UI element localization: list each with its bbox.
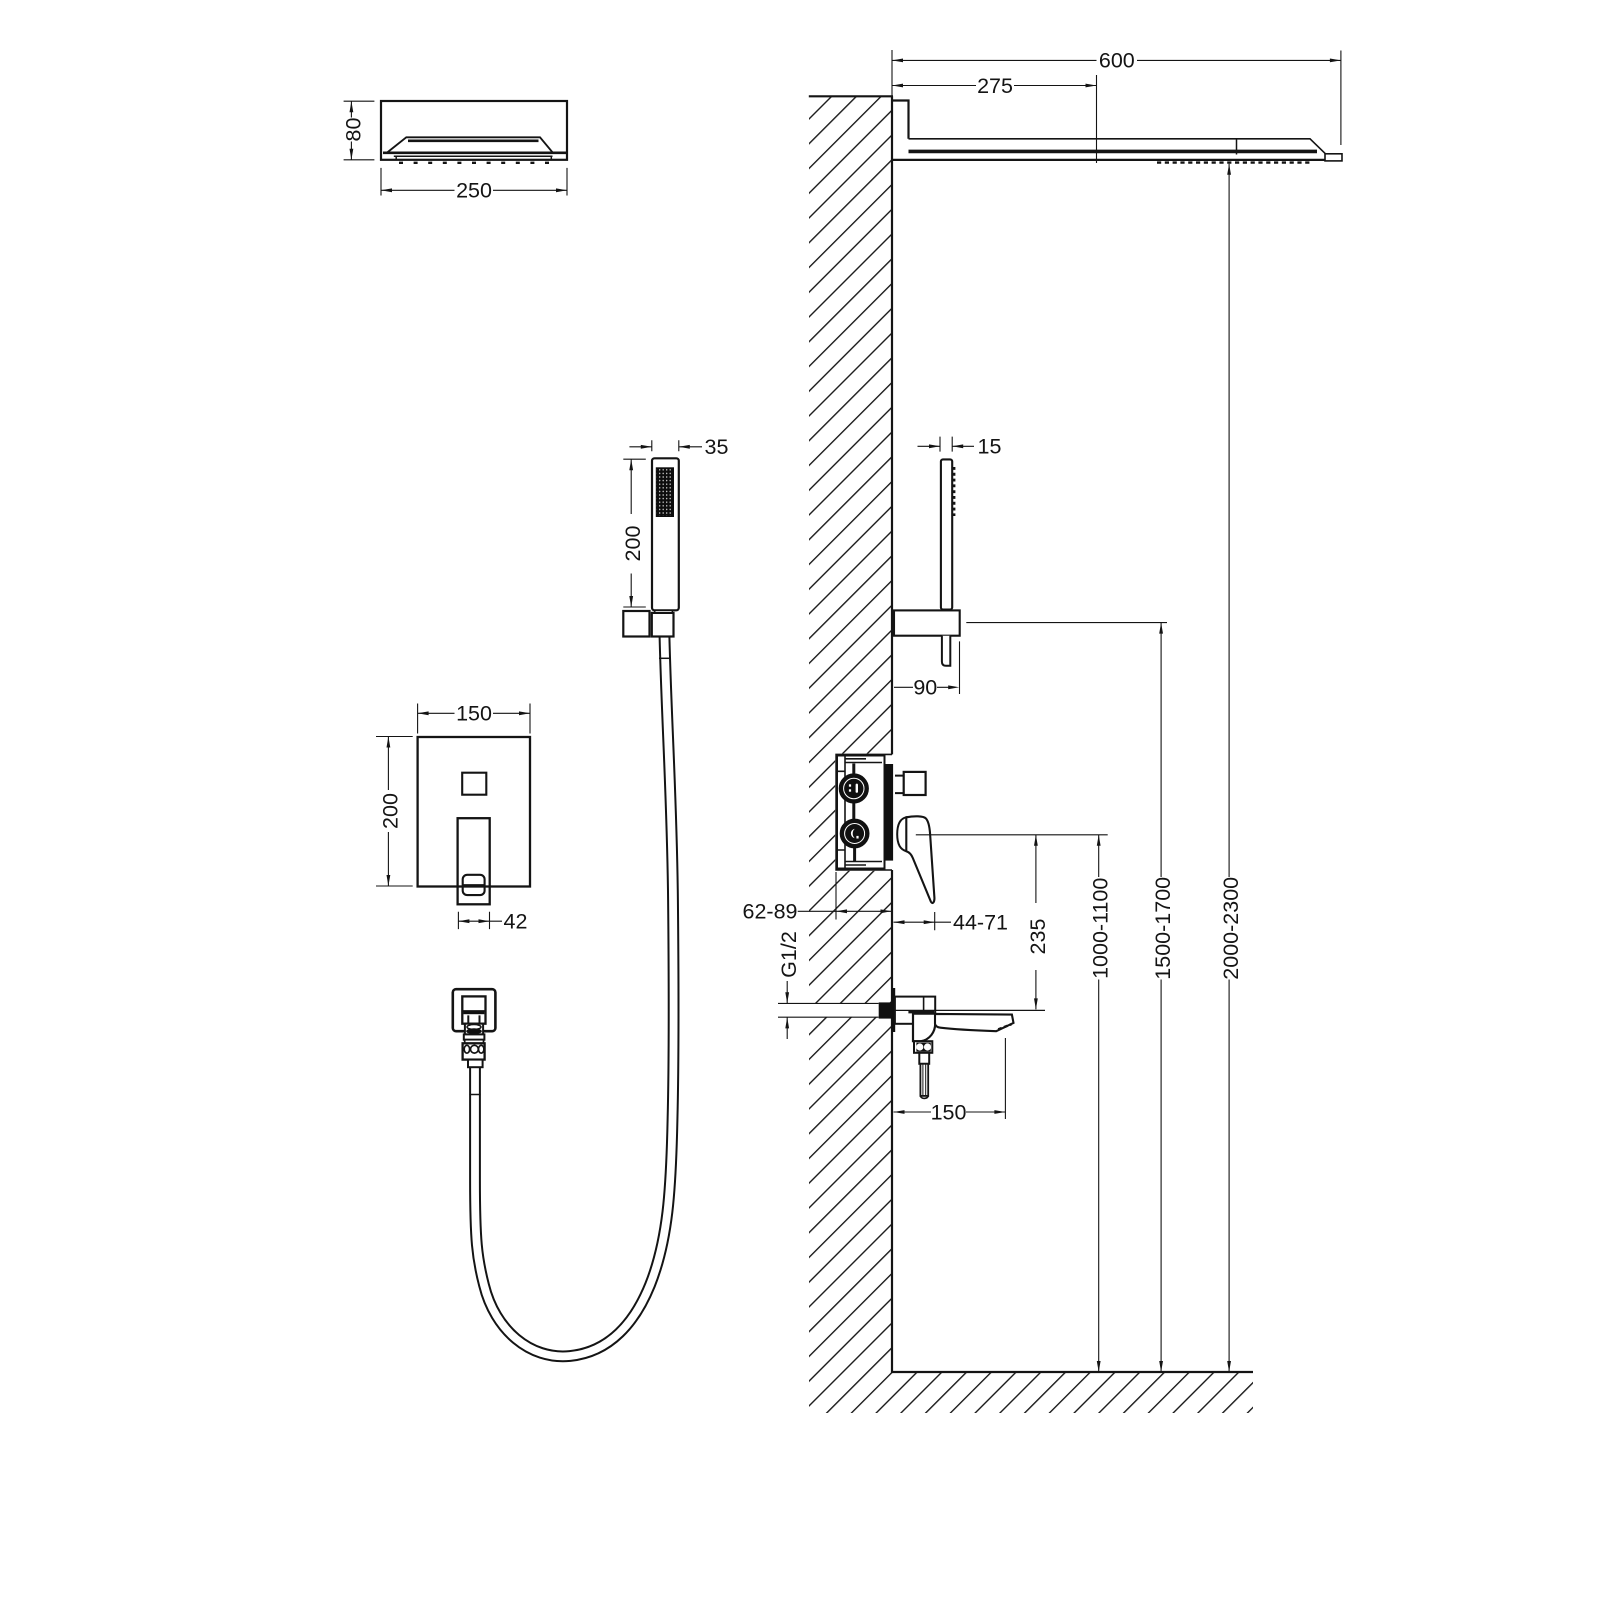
svg-text:90: 90 [913, 676, 937, 700]
svg-text:44-71: 44-71 [953, 911, 1008, 935]
svg-text:600: 600 [1099, 49, 1135, 73]
svg-text:1000-1100: 1000-1100 [1089, 878, 1113, 979]
svg-text:235: 235 [1026, 919, 1050, 955]
svg-text:2000-2300: 2000-2300 [1219, 877, 1243, 980]
svg-text:150: 150 [931, 1100, 967, 1124]
svg-text:250: 250 [456, 179, 492, 203]
svg-text:G1/2: G1/2 [777, 931, 801, 978]
svg-text:62-89: 62-89 [743, 900, 798, 924]
svg-text:200: 200 [378, 793, 402, 829]
svg-text:150: 150 [456, 702, 492, 726]
svg-text:15: 15 [978, 435, 1002, 459]
svg-text:42: 42 [504, 910, 528, 934]
svg-text:1500-1700: 1500-1700 [1151, 877, 1175, 980]
svg-text:275: 275 [977, 74, 1013, 98]
svg-text:200: 200 [621, 526, 645, 562]
svg-text:80: 80 [341, 118, 365, 142]
svg-text:35: 35 [705, 435, 729, 459]
